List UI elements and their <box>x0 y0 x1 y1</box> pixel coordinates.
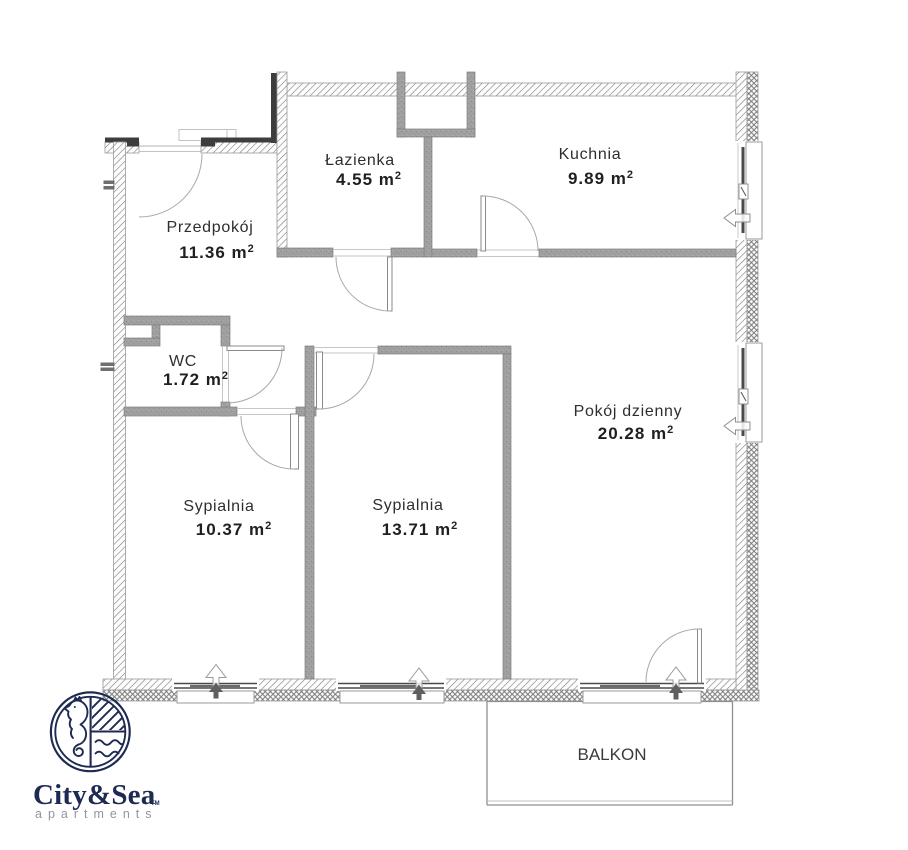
svg-text:Kuchnia: Kuchnia <box>559 146 622 163</box>
svg-text:Przedpokój: Przedpokój <box>166 219 253 236</box>
svg-text:Łazienka: Łazienka <box>325 152 395 169</box>
svg-text:10.37 m2: 10.37 m2 <box>196 520 273 539</box>
svg-text:Sypialnia: Sypialnia <box>183 498 254 515</box>
svg-text:apartments: apartments <box>35 807 158 821</box>
svg-text:Pokój dzienny: Pokój dzienny <box>574 403 683 420</box>
svg-text:20.28 m2: 20.28 m2 <box>598 424 675 443</box>
svg-text:BALKON: BALKON <box>578 745 647 764</box>
svg-text:11.36 m2: 11.36 m2 <box>179 243 255 262</box>
svg-text:13.71 m2: 13.71 m2 <box>382 520 459 539</box>
svg-text:WC: WC <box>169 353 197 370</box>
svg-text:4.55 m2: 4.55 m2 <box>336 170 402 189</box>
svg-text:Sypialnia: Sypialnia <box>372 497 443 514</box>
svg-text:9.89 m2: 9.89 m2 <box>568 169 634 188</box>
svg-text:1.72 m2: 1.72 m2 <box>163 370 229 389</box>
